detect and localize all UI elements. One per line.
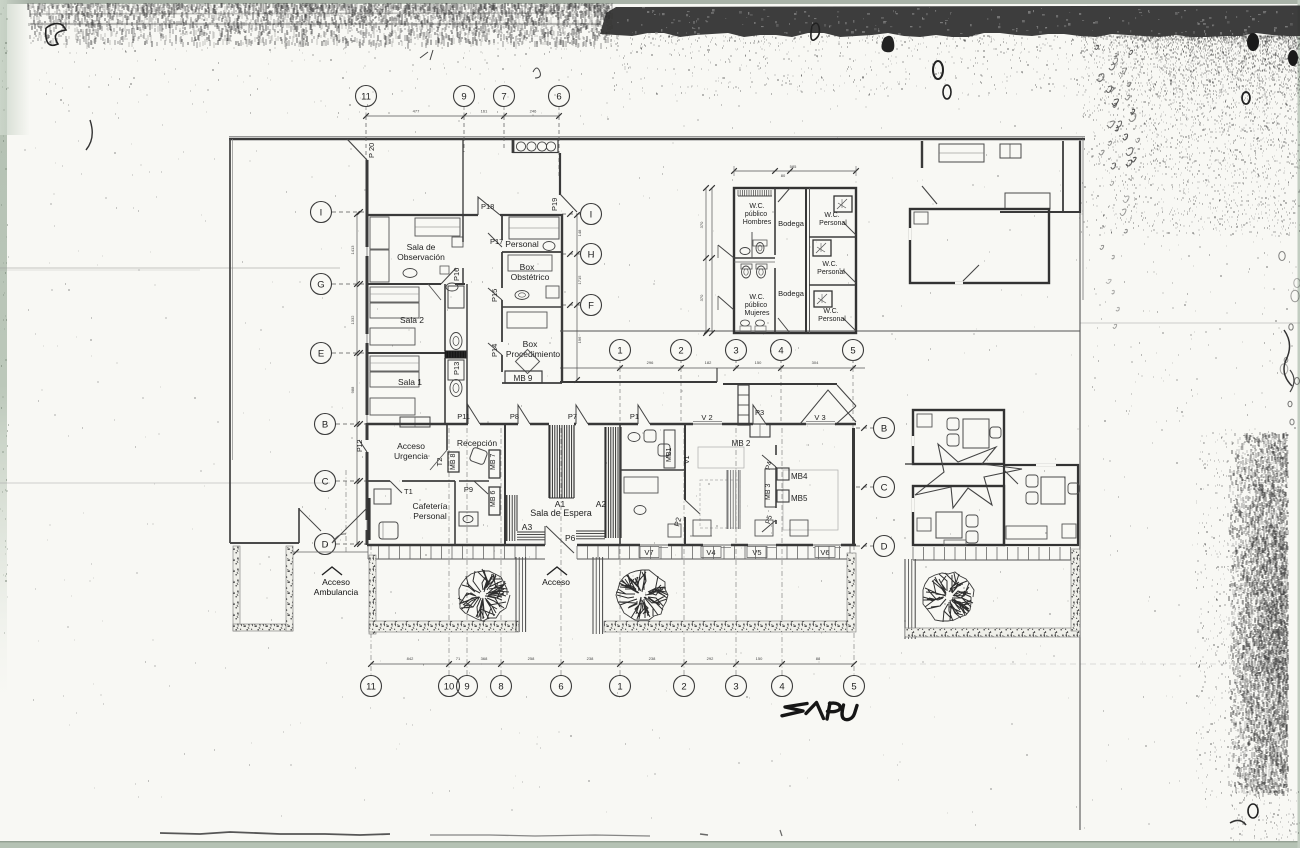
svg-text:150: 150 [755, 360, 762, 365]
svg-text:P13: P13 [452, 362, 461, 375]
svg-text:258: 258 [528, 656, 535, 661]
svg-text:238: 238 [587, 656, 594, 661]
svg-text:292: 292 [707, 656, 714, 661]
svg-text:Bodega: Bodega [778, 289, 805, 298]
svg-text:9: 9 [461, 91, 466, 102]
svg-text:A3: A3 [522, 522, 533, 532]
svg-text:E: E [318, 348, 324, 359]
svg-text:11: 11 [366, 681, 376, 692]
svg-text:11: 11 [361, 91, 371, 102]
svg-text:MB 7: MB 7 [490, 454, 497, 470]
svg-text:P11: P11 [457, 412, 470, 421]
svg-text:80: 80 [781, 173, 786, 178]
svg-text:P8: P8 [510, 412, 519, 421]
svg-text:W.C.: W.C. [823, 308, 838, 315]
svg-text:público: público [745, 302, 767, 309]
svg-text:304: 304 [812, 360, 819, 365]
svg-text:H: H [588, 249, 595, 260]
svg-text:71: 71 [456, 656, 461, 661]
svg-text:2: 2 [681, 681, 686, 692]
svg-text:Mujeres: Mujeres [745, 310, 770, 317]
svg-text:6: 6 [558, 681, 563, 692]
svg-text:Sala 1: Sala 1 [398, 377, 422, 387]
svg-text:246: 246 [530, 109, 537, 114]
svg-text:Personal: Personal [819, 220, 847, 227]
svg-text:1: 1 [617, 681, 622, 692]
svg-text:1715: 1715 [577, 275, 582, 285]
svg-text:370: 370 [699, 294, 704, 301]
svg-text:G: G [317, 279, 324, 290]
svg-text:5: 5 [851, 681, 856, 692]
svg-text:MB5: MB5 [791, 494, 808, 503]
svg-text:MB1: MB1 [666, 448, 673, 463]
svg-text:Recepción: Recepción [457, 438, 497, 448]
svg-text:368: 368 [481, 656, 488, 661]
svg-text:I: I [590, 209, 593, 220]
svg-text:Bodega: Bodega [778, 219, 805, 228]
svg-text:Ambulancia: Ambulancia [314, 587, 359, 597]
svg-text:161: 161 [481, 109, 488, 114]
svg-text:P19: P19 [550, 198, 559, 211]
svg-text:585: 585 [790, 164, 797, 169]
svg-text:F: F [588, 300, 594, 311]
svg-text:6: 6 [556, 91, 561, 102]
svg-text:10: 10 [444, 681, 455, 692]
svg-text:B: B [322, 419, 328, 430]
svg-text:Box: Box [523, 339, 538, 349]
svg-text:V1: V1 [684, 455, 691, 464]
svg-text:público: público [745, 211, 767, 218]
svg-text:3: 3 [733, 345, 738, 356]
svg-text:Cafetería: Cafetería [413, 501, 448, 511]
svg-text:1: 1 [617, 345, 622, 356]
svg-text:148: 148 [577, 229, 582, 236]
svg-text:Hombres: Hombres [743, 219, 772, 226]
svg-text:Urgencia: Urgencia [394, 451, 428, 461]
svg-text:4: 4 [779, 681, 784, 692]
svg-text:Sala de Espera: Sala de Espera [530, 508, 592, 518]
svg-text:I: I [320, 207, 323, 218]
svg-text:MB 8: MB 8 [450, 454, 457, 470]
svg-text:182: 182 [705, 360, 712, 365]
svg-text:296: 296 [647, 360, 654, 365]
svg-text:MB 9: MB 9 [514, 374, 533, 383]
svg-text:7: 7 [501, 91, 506, 102]
svg-text:988: 988 [350, 386, 355, 393]
svg-text:88: 88 [816, 656, 821, 661]
svg-text:W.C.: W.C. [824, 212, 839, 219]
svg-text:D: D [322, 539, 329, 550]
svg-text:Procedimiento: Procedimiento [506, 349, 561, 359]
svg-text:P16: P16 [452, 268, 461, 281]
svg-text:Personal: Personal [505, 239, 539, 249]
svg-text:W.C.: W.C. [749, 203, 764, 210]
svg-text:T1: T1 [404, 487, 413, 496]
svg-text:V 3: V 3 [814, 413, 825, 422]
svg-text:P9: P9 [464, 485, 473, 494]
svg-text:150: 150 [756, 656, 763, 661]
svg-text:W.C.: W.C. [749, 294, 764, 301]
svg-text:2: 2 [678, 345, 683, 356]
svg-text:T2: T2 [435, 458, 444, 467]
svg-text:4: 4 [778, 345, 783, 356]
svg-text:P15: P15 [490, 289, 499, 302]
svg-text:P6: P6 [565, 533, 576, 543]
svg-text:C: C [881, 482, 888, 493]
svg-text:1413: 1413 [350, 245, 355, 255]
svg-text:P7: P7 [568, 412, 577, 421]
svg-text:W.C.: W.C. [822, 261, 837, 268]
svg-text:V4: V4 [706, 548, 715, 557]
svg-text:MB 2: MB 2 [732, 439, 751, 448]
svg-text:3: 3 [733, 681, 738, 692]
svg-text:842: 842 [407, 656, 414, 661]
svg-text:Personal: Personal [818, 316, 846, 323]
svg-text:P18: P18 [481, 202, 494, 211]
svg-text:Box: Box [520, 262, 535, 272]
svg-text:B: B [881, 423, 887, 434]
svg-text:P12: P12 [357, 439, 364, 452]
svg-text:V 2: V 2 [701, 413, 712, 422]
svg-text:MB 6: MB 6 [490, 491, 497, 507]
svg-text:8: 8 [498, 681, 503, 692]
svg-text:V7: V7 [644, 548, 653, 557]
svg-text:477: 477 [413, 109, 420, 114]
svg-text:Sala de: Sala de [407, 242, 436, 252]
svg-text:A2: A2 [596, 499, 607, 509]
svg-text:V5: V5 [752, 548, 761, 557]
svg-text:Acceso: Acceso [397, 441, 425, 451]
svg-text:Acceso: Acceso [322, 577, 350, 587]
svg-text:9: 9 [464, 681, 469, 692]
svg-text:196: 196 [577, 336, 582, 343]
svg-text:MB4: MB4 [791, 472, 808, 481]
svg-text:238: 238 [649, 656, 656, 661]
svg-text:Personal: Personal [413, 511, 447, 521]
svg-text:370: 370 [699, 221, 704, 228]
svg-text:Acceso: Acceso [542, 577, 570, 587]
svg-text:D: D [881, 541, 888, 552]
svg-text:5: 5 [850, 345, 855, 356]
svg-text:MB 3: MB 3 [765, 484, 772, 500]
svg-text:Personal: Personal [817, 269, 845, 276]
svg-text:P1: P1 [630, 412, 639, 421]
svg-text:Obstétrico: Obstétrico [511, 272, 550, 282]
svg-text:Observación: Observación [397, 252, 445, 262]
svg-text:P 20: P 20 [367, 143, 376, 158]
svg-text:Sala 2: Sala 2 [400, 315, 424, 325]
svg-text:V6: V6 [820, 548, 829, 557]
svg-text:P3: P3 [755, 408, 764, 417]
svg-text:C: C [322, 476, 329, 487]
svg-text:P14: P14 [490, 344, 499, 357]
svg-text:1332: 1332 [350, 315, 355, 325]
